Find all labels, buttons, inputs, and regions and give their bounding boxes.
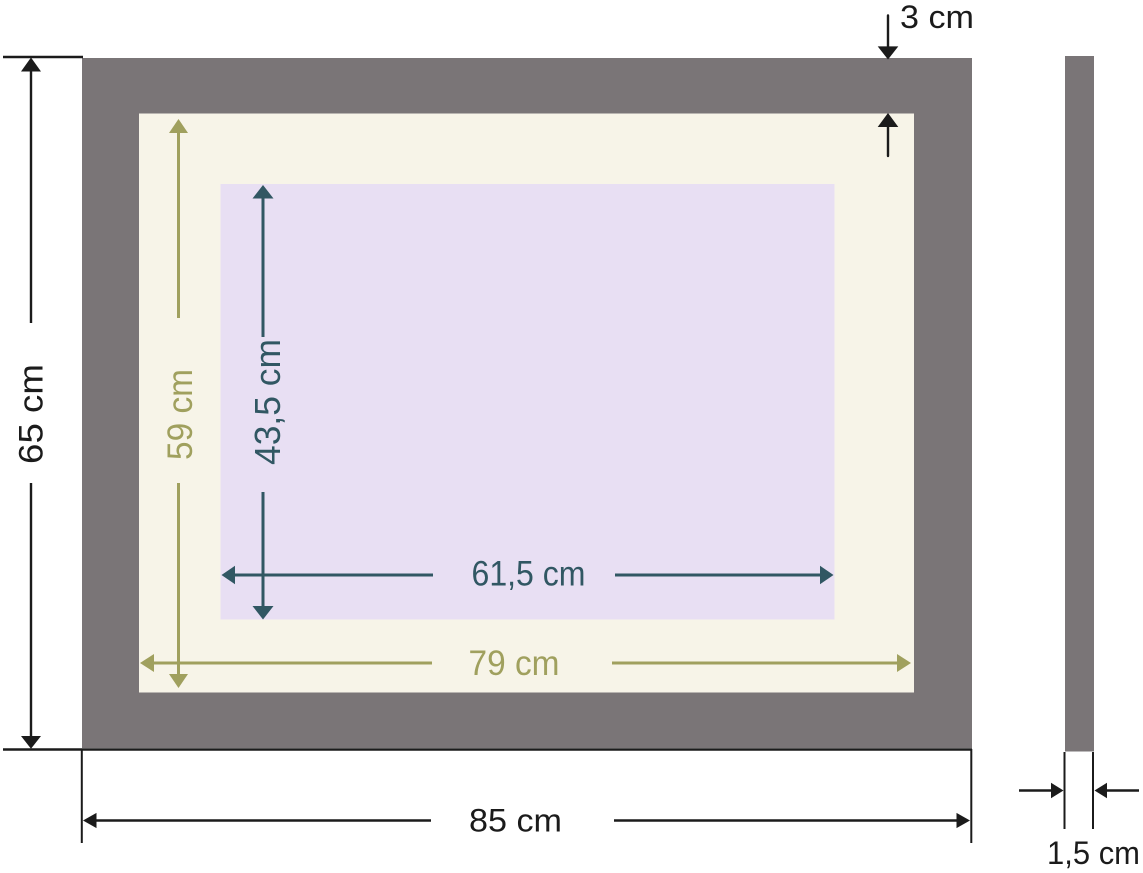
svg-text:65 cm: 65 cm xyxy=(13,364,51,464)
svg-text:79 cm: 79 cm xyxy=(469,644,560,683)
svg-text:61,5 cm: 61,5 cm xyxy=(472,555,586,594)
svg-text:1,5 cm: 1,5 cm xyxy=(1047,835,1140,871)
svg-text:3 cm: 3 cm xyxy=(900,0,974,35)
svg-text:43,5 cm: 43,5 cm xyxy=(247,339,288,465)
svg-text:85 cm: 85 cm xyxy=(469,803,562,839)
svg-text:59 cm: 59 cm xyxy=(161,369,200,460)
